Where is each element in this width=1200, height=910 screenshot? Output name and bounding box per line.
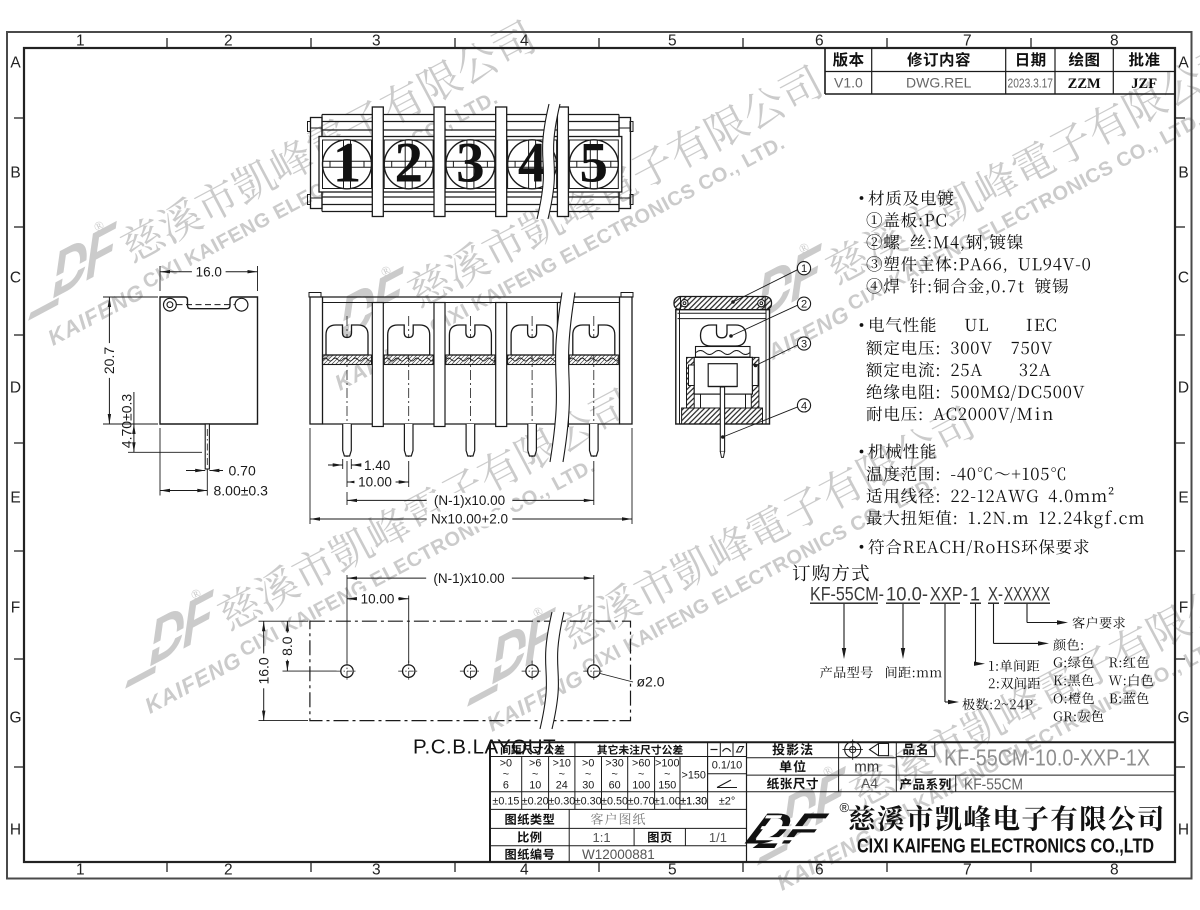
- svg-text:E: E: [1178, 490, 1188, 507]
- svg-text:24: 24: [556, 780, 568, 792]
- svg-text:7: 7: [963, 862, 972, 879]
- svg-text:Nx10.00+2.0: Nx10.00+2.0: [431, 512, 508, 527]
- svg-text:C: C: [1178, 270, 1189, 287]
- svg-text:6: 6: [503, 780, 509, 792]
- svg-text:A4: A4: [861, 775, 878, 791]
- svg-text:16.0: 16.0: [196, 264, 222, 279]
- svg-text:KF-55CM: KF-55CM: [964, 777, 1023, 794]
- svg-text:H: H: [1178, 822, 1189, 839]
- svg-text:(N-1)x10.00: (N-1)x10.00: [433, 571, 504, 586]
- svg-text:X-: X-: [988, 585, 1003, 606]
- svg-text:1: 1: [76, 862, 85, 879]
- svg-text:4: 4: [520, 862, 529, 879]
- svg-text:G: G: [9, 710, 21, 727]
- svg-text:F: F: [1179, 600, 1188, 617]
- svg-text:10: 10: [529, 780, 541, 792]
- svg-text:10.0-: 10.0-: [886, 585, 928, 606]
- svg-text:±0.15: ±0.15: [492, 796, 519, 808]
- svg-text:±0.30: ±0.30: [575, 796, 602, 808]
- svg-text:1: 1: [970, 585, 980, 606]
- svg-text:KF-55CM-: KF-55CM-: [810, 585, 884, 606]
- svg-text:1/1: 1/1: [709, 830, 727, 845]
- svg-text:XXXXX: XXXXX: [1004, 585, 1050, 606]
- svg-text:8: 8: [1110, 862, 1119, 879]
- svg-text:JZF: JZF: [1131, 76, 1157, 92]
- svg-text:±1.30: ±1.30: [680, 796, 707, 808]
- svg-text:8.00±0.3: 8.00±0.3: [214, 482, 269, 498]
- svg-text:1: 1: [76, 33, 85, 50]
- svg-text:1:1: 1:1: [593, 830, 611, 845]
- svg-text:ZZM: ZZM: [1068, 76, 1101, 92]
- svg-text:5: 5: [580, 132, 609, 195]
- svg-text:G: G: [1177, 710, 1189, 727]
- svg-text:5: 5: [668, 862, 677, 879]
- svg-text:>150: >150: [682, 769, 706, 781]
- svg-text:7: 7: [963, 33, 972, 50]
- svg-text:6: 6: [815, 33, 824, 50]
- svg-text:®: ®: [840, 800, 850, 815]
- svg-text:10.00: 10.00: [358, 475, 392, 490]
- svg-text:±0.20: ±0.20: [522, 796, 549, 808]
- svg-text:100: 100: [632, 780, 650, 792]
- svg-text:KF-55CM-10.0-XXP-1X: KF-55CM-10.0-XXP-1X: [944, 745, 1150, 771]
- svg-text:1.40: 1.40: [364, 458, 390, 473]
- svg-text:F: F: [11, 600, 20, 617]
- svg-text:60: 60: [609, 780, 621, 792]
- svg-text:E: E: [10, 490, 20, 507]
- svg-text:4.70±0.3: 4.70±0.3: [119, 394, 135, 449]
- svg-text:2023.3.17: 2023.3.17: [1008, 76, 1054, 90]
- svg-text:10.00: 10.00: [361, 591, 395, 606]
- svg-text:30: 30: [582, 780, 594, 792]
- svg-text:8: 8: [1110, 33, 1119, 50]
- svg-text:±0.30: ±0.30: [548, 796, 575, 808]
- svg-text:4: 4: [801, 400, 807, 412]
- svg-text:D: D: [10, 380, 21, 397]
- svg-text:B: B: [1178, 165, 1188, 182]
- svg-text:3: 3: [372, 862, 381, 879]
- svg-text:8.0: 8.0: [279, 636, 295, 656]
- svg-text:2: 2: [224, 33, 233, 50]
- svg-text:H: H: [10, 822, 21, 839]
- svg-text:±1.00: ±1.00: [654, 796, 681, 808]
- svg-text:C: C: [10, 270, 21, 287]
- svg-text:4: 4: [520, 33, 529, 50]
- svg-text:(N-1)x10.00: (N-1)x10.00: [434, 493, 505, 508]
- svg-text:B: B: [10, 165, 20, 182]
- svg-text:W12000881: W12000881: [582, 847, 655, 862]
- svg-text:CIXI KAIFENG ELECTRONICS CO.,L: CIXI KAIFENG ELECTRONICS CO.,LTD: [857, 836, 1154, 858]
- svg-text:16.0: 16.0: [255, 657, 271, 684]
- svg-text:A: A: [10, 55, 21, 72]
- svg-text:±0.70: ±0.70: [628, 796, 655, 808]
- svg-text:3: 3: [372, 33, 381, 50]
- svg-text:20.7: 20.7: [101, 347, 117, 374]
- svg-text:mm: mm: [854, 759, 879, 776]
- svg-text:D: D: [1178, 380, 1189, 397]
- svg-text:2: 2: [394, 132, 423, 195]
- svg-text:A: A: [1178, 55, 1189, 72]
- svg-text:3: 3: [456, 132, 485, 195]
- svg-text:4: 4: [518, 132, 547, 195]
- svg-text:0.70: 0.70: [229, 462, 256, 478]
- svg-text:±2°: ±2°: [719, 796, 736, 808]
- svg-text:0.1/10: 0.1/10: [712, 760, 743, 772]
- svg-text:2: 2: [801, 299, 807, 311]
- svg-text:V1.0: V1.0: [834, 74, 863, 90]
- svg-text:3: 3: [801, 339, 807, 351]
- svg-text:6: 6: [815, 862, 824, 879]
- svg-text:1: 1: [801, 263, 807, 275]
- svg-text:5: 5: [668, 33, 677, 50]
- svg-text:XXP-: XXP-: [930, 585, 968, 606]
- svg-text:ø2.0: ø2.0: [637, 674, 665, 690]
- svg-text:DWG.REL: DWG.REL: [906, 74, 972, 90]
- svg-text:1: 1: [333, 132, 362, 195]
- svg-text:±0.50: ±0.50: [601, 796, 628, 808]
- svg-text:2: 2: [224, 862, 233, 879]
- svg-text:150: 150: [658, 780, 676, 792]
